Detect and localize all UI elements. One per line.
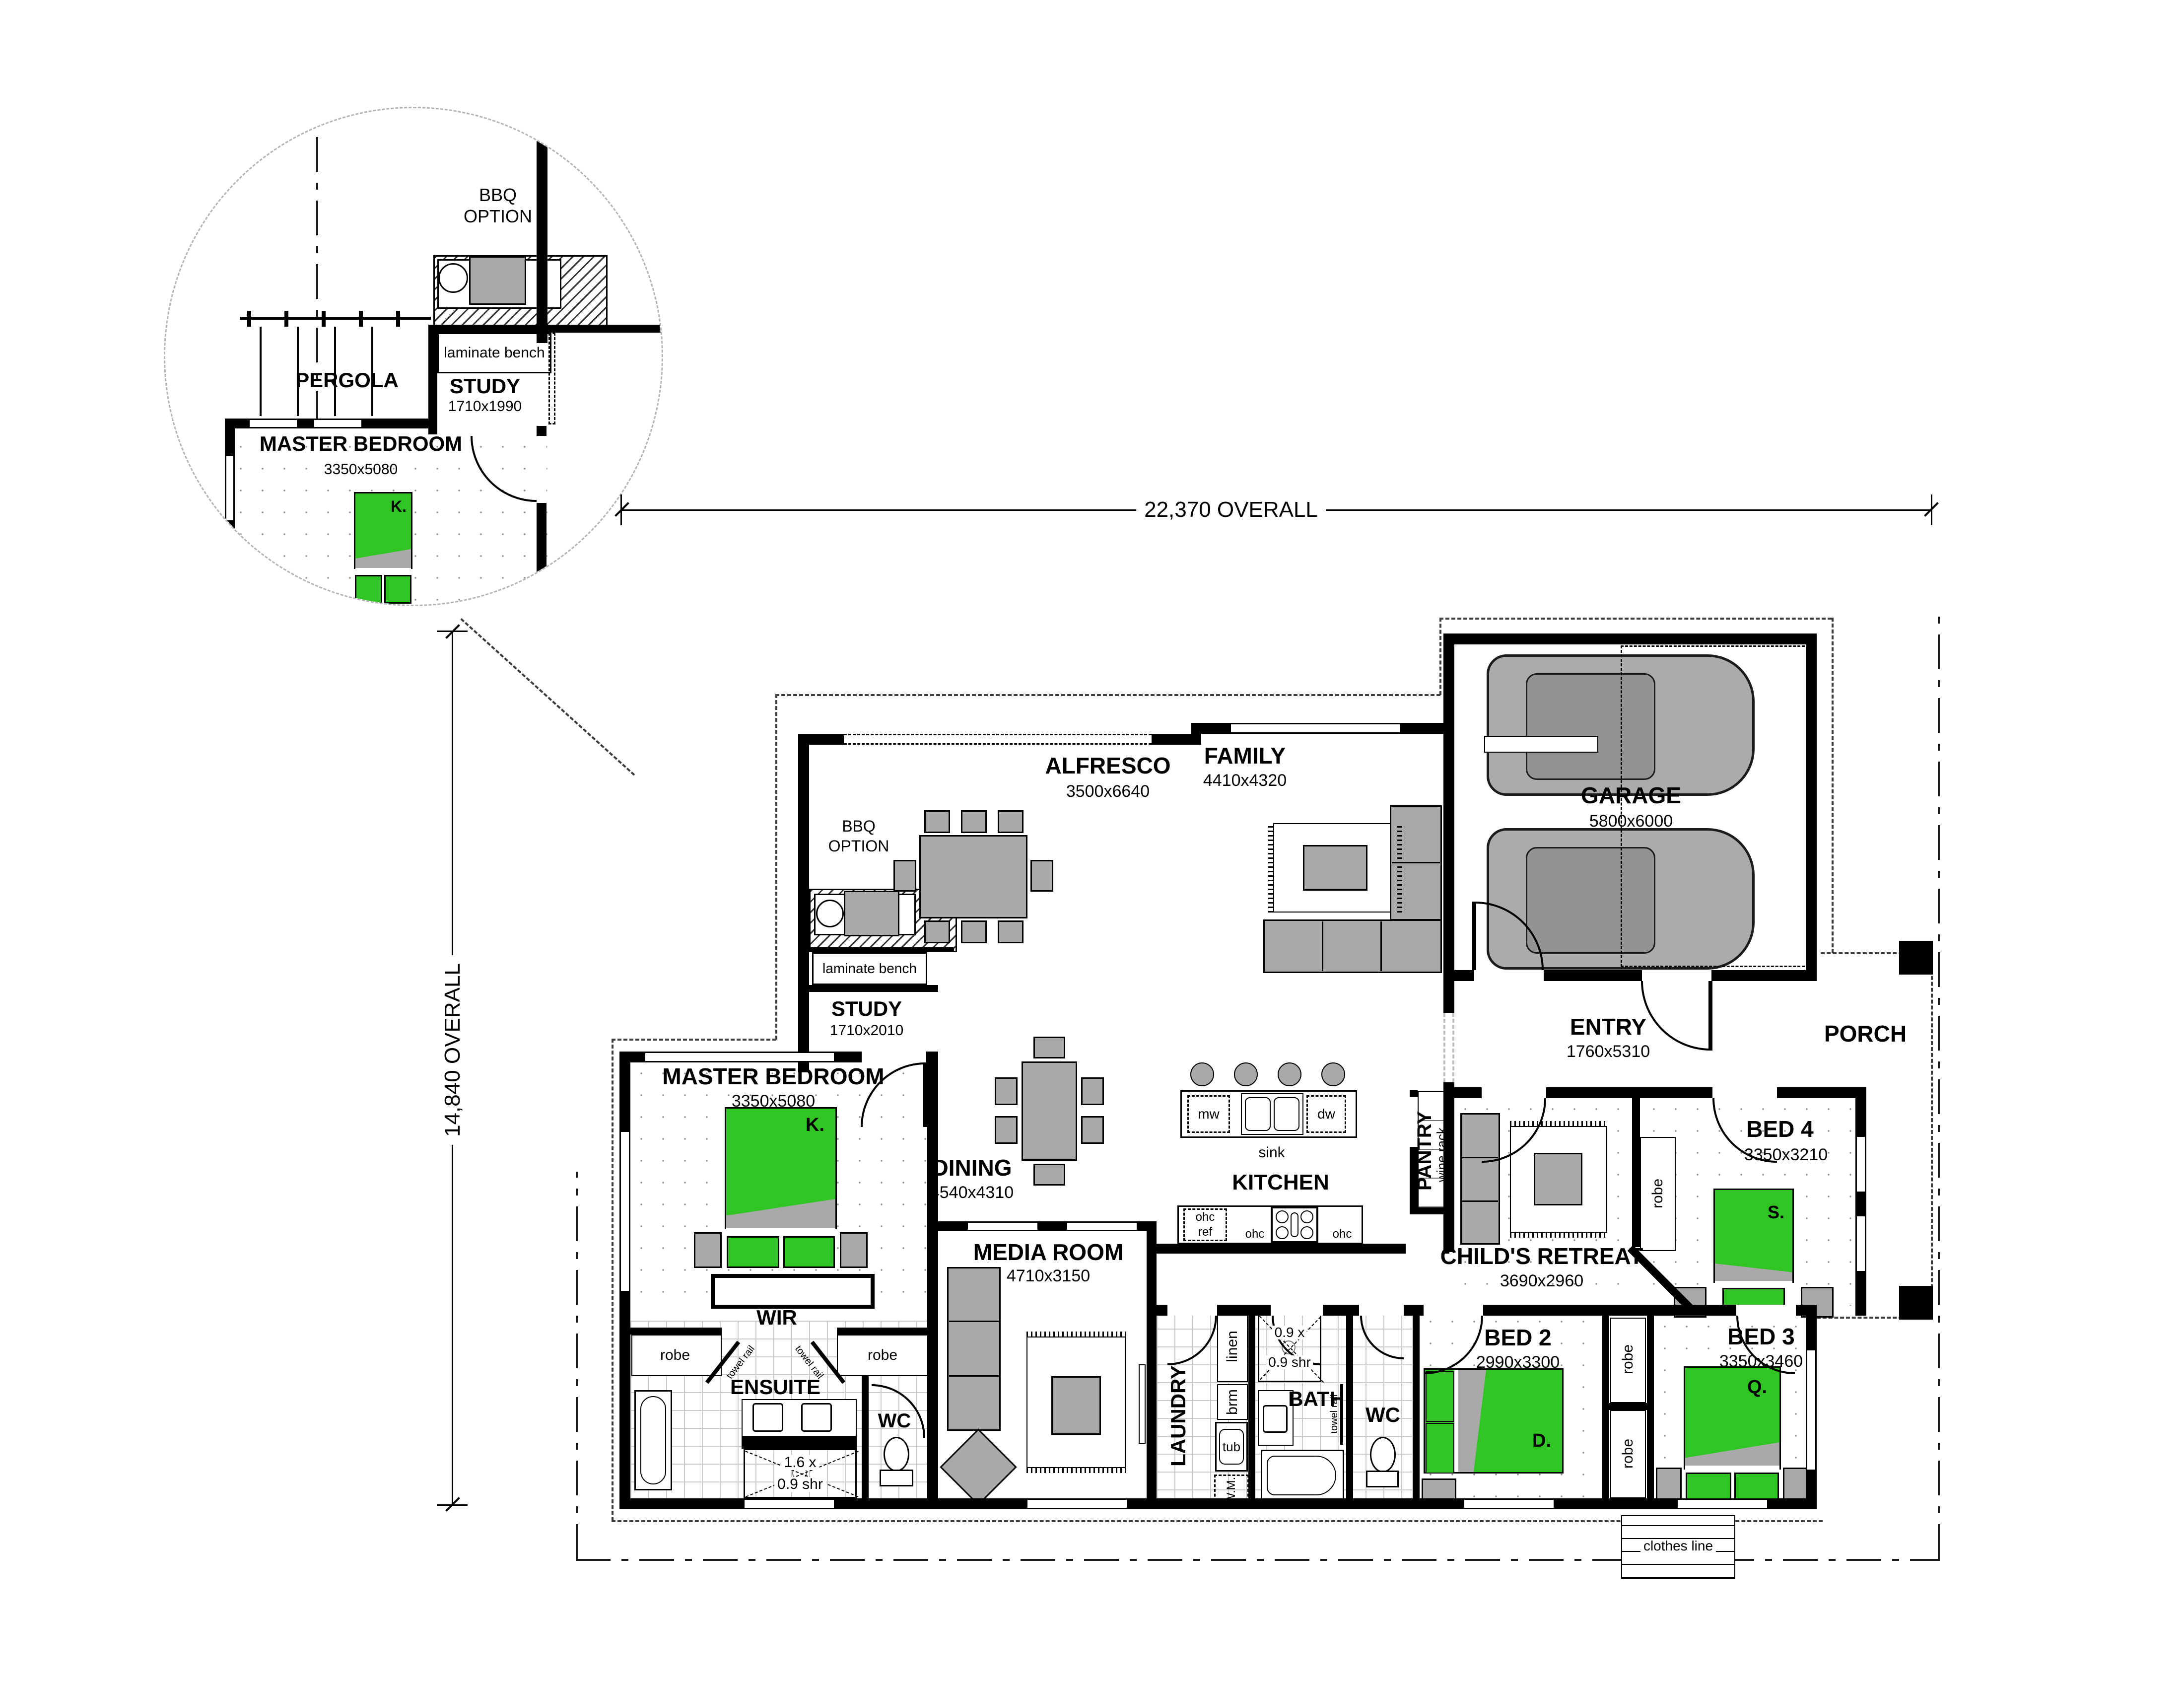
bed2-label: BED 2 (1484, 1326, 1551, 1349)
bed4-bed-type: S. (1768, 1203, 1784, 1221)
family-size: 4410x4320 (1203, 772, 1287, 789)
toilet-cistern (880, 1470, 913, 1486)
wir-robe-wall (630, 1328, 722, 1335)
porch-label: PORCH (1824, 1022, 1907, 1045)
front-door-leaf (1708, 981, 1712, 1051)
dining-table (1022, 1061, 1077, 1161)
left-window (619, 1132, 630, 1291)
bathtub-inner (640, 1396, 666, 1484)
master-dresser (711, 1274, 875, 1309)
washing-machine-label: W.M. (1226, 1477, 1237, 1504)
family-entry-opening-line (1443, 1013, 1445, 1082)
bed4-door-opening (1712, 1087, 1777, 1098)
media-cavity-door (968, 1221, 1037, 1231)
media-right-wall (1147, 1231, 1157, 1509)
family-sofa (1263, 919, 1442, 973)
inset-bed-type-label: K. (391, 498, 407, 514)
bottom-window (1027, 1498, 1127, 1509)
toilet-pan (884, 1437, 909, 1472)
master-bed-pillow (783, 1236, 835, 1268)
inset-master-top-window (314, 419, 361, 428)
master-label: MASTER BEDROOM (662, 1065, 884, 1088)
inset-bbq-grill (469, 256, 526, 305)
bed2-gap (1454, 1370, 1458, 1472)
broom-label: brm (1225, 1389, 1240, 1415)
inset-bed-gap (355, 568, 411, 572)
vanity-basin (1263, 1405, 1288, 1433)
entry-size: 1760x5310 (1567, 1043, 1650, 1060)
sofa-cushion-line (1462, 1200, 1498, 1202)
inset-master-left-window (225, 456, 235, 520)
bottom-window (1678, 1498, 1767, 1509)
clothes-line-label: clothes line (1640, 1539, 1716, 1553)
bottom-window (1464, 1498, 1554, 1509)
alfresco-chair (961, 810, 987, 833)
alfresco-top-screen (844, 734, 1152, 745)
bed2-pillow (1426, 1371, 1454, 1422)
bbq-option-label-line2: OPTION (828, 838, 889, 854)
kitchen-stool (1321, 1062, 1345, 1086)
sofa-cushion-line (1322, 921, 1323, 971)
retreat-label: CHILD'S RETREAT (1440, 1245, 1643, 1267)
inset-bed-pillow (384, 575, 411, 604)
ensuite-wc-wall (862, 1375, 869, 1499)
kitchen-stool (1234, 1062, 1258, 1086)
family-tv-unit (1484, 736, 1598, 753)
family-top-window (1231, 723, 1400, 734)
bed3-bedside-table (1783, 1468, 1809, 1501)
ensuite-shower-size-line2: 0.9 shr (774, 1477, 826, 1492)
boundary-line (1938, 613, 1940, 1559)
inset-leader-line (460, 618, 635, 775)
inset-master-label: MASTER BEDROOM (260, 433, 462, 454)
dining-chair (1081, 1077, 1104, 1105)
alfresco-left-wall (798, 734, 809, 1072)
robe-bed3-wall (1647, 1316, 1654, 1509)
inset-study-label: STUDY (450, 376, 520, 397)
ensuite-wc-label: WC (878, 1411, 911, 1431)
hall-bottom-wall (1157, 1305, 1817, 1316)
bed3-size: 3350x3460 (1719, 1353, 1803, 1370)
media-cavity-door (1067, 1221, 1137, 1231)
bed4-right-window (1855, 1137, 1866, 1192)
porch-roof-line (1931, 952, 1933, 1318)
toilet-pan (1370, 1437, 1396, 1473)
front-door-arc (1641, 981, 1710, 1051)
vanity-basin (752, 1403, 783, 1432)
dining-chair (1081, 1116, 1104, 1144)
master-size: 3350x5080 (732, 1093, 815, 1110)
entry-label: ENTRY (1570, 1015, 1646, 1038)
inset-wall-vertical (537, 107, 547, 343)
bottom-window (745, 1498, 834, 1509)
linen-label: linen (1225, 1331, 1240, 1362)
bed2-bed-type: D. (1532, 1431, 1551, 1450)
bed3-right-window (1806, 1350, 1817, 1470)
garage-label: GARAGE (1581, 784, 1681, 807)
inset-study-right-wall (548, 333, 555, 424)
tub-label: tub (1223, 1440, 1240, 1453)
sofa-cushion-line (949, 1375, 999, 1377)
ohc-label: ohc (1245, 1228, 1265, 1240)
bed3-pillow (1686, 1473, 1731, 1501)
sink-label: sink (1258, 1145, 1285, 1160)
laundry-door-opening (1167, 1305, 1217, 1316)
master-door-leaf (923, 1062, 927, 1127)
pantry-label: PANTRY (1415, 1111, 1434, 1191)
wc-bed2-wall (1413, 1316, 1420, 1509)
pantry-bottom-wall (1410, 1208, 1449, 1214)
bed3-pillow (1734, 1473, 1779, 1501)
pergola-post (284, 311, 288, 327)
inset-master-door-opening (537, 436, 546, 503)
inset-bbq-option-label-line1: BBQ (479, 186, 517, 204)
master-bed-gap (726, 1228, 835, 1233)
robe-label: robe (868, 1348, 897, 1363)
vanity-basin (801, 1403, 832, 1432)
master-bedside-table (840, 1232, 868, 1268)
inset-master-top-window (250, 419, 297, 428)
media-label: MEDIA ROOM (973, 1241, 1123, 1264)
microwave-label: mw (1198, 1107, 1220, 1121)
kitchen-stool (1278, 1062, 1301, 1086)
bath-shower-size-line2: 0.9 shr (1266, 1355, 1313, 1369)
kitchen-stool (1190, 1062, 1214, 1086)
bed3-bed-type: Q. (1747, 1378, 1767, 1397)
eave-line (612, 1039, 614, 1521)
inset-bbq-option-label-line2: OPTION (464, 208, 532, 225)
sofa-cushion-line (1380, 921, 1382, 971)
eave-line (775, 694, 1440, 696)
dim-height-label: 14,840 OVERALL (439, 955, 466, 1145)
ohc-label: ohc (1333, 1228, 1352, 1240)
family-rug-fringe (1397, 823, 1402, 913)
garage-door-opening (1474, 970, 1544, 981)
inset-master-size: 3350x5080 (324, 462, 398, 477)
retreat-size: 3690x2960 (1500, 1272, 1583, 1289)
study-size: 1710x2010 (830, 1023, 903, 1038)
inset-pergola-top-edge (240, 317, 431, 320)
pergola-post (359, 311, 363, 327)
pergola-label: PERGOLA (295, 370, 399, 391)
alfresco-chair (998, 810, 1024, 833)
family-label: FAMILY (1204, 744, 1286, 767)
wc-label: WC (1365, 1405, 1400, 1425)
alfresco-chair (998, 920, 1024, 943)
bathtub-inner (1267, 1456, 1336, 1495)
retreat-bed4-wall (1632, 1098, 1640, 1247)
bed4-label: BED 4 (1746, 1118, 1813, 1140)
sofa-cushion-line (949, 1321, 999, 1322)
cooktop-burner (1276, 1210, 1289, 1223)
sink-bowl (1274, 1097, 1299, 1131)
garage-left-wall (1443, 633, 1454, 981)
bed4-right-window (1855, 1216, 1866, 1271)
retreat-table (1534, 1153, 1582, 1205)
robe-label: robe (660, 1348, 690, 1363)
garage-size: 5800x6000 (1589, 813, 1673, 830)
eave-line (1439, 618, 1832, 620)
garage-right-wall (1806, 633, 1817, 981)
alfresco-chair (893, 860, 916, 892)
cooktop-burner (1300, 1210, 1313, 1223)
pergola-post (396, 311, 400, 327)
bed3-gap (1685, 1466, 1779, 1470)
master-bed-pillow (727, 1236, 779, 1268)
dining-chair (1033, 1037, 1065, 1058)
eave-line (1832, 618, 1834, 953)
robe-label: robe (1650, 1179, 1665, 1208)
alfresco-chair (1030, 860, 1053, 892)
dining-label: DINING (932, 1156, 1012, 1179)
study-label: STUDY (831, 998, 902, 1019)
garage-door-leaf (1472, 902, 1476, 971)
bed2-robe-wall (1602, 1316, 1609, 1509)
bath-door-opening (1271, 1305, 1323, 1316)
sink-bowl (1245, 1097, 1271, 1131)
eave-line (1439, 618, 1441, 695)
fridge-label: ref (1198, 1226, 1212, 1238)
inset-bed-pillow (355, 575, 382, 604)
eave-line (612, 1039, 776, 1041)
study-top-wall (798, 985, 938, 992)
bed3-bedside-table (1656, 1468, 1682, 1501)
boundary-line (576, 1172, 578, 1559)
family-coffee-table (1303, 845, 1367, 891)
dim-width-label: 22,370 OVERALL (1136, 496, 1326, 523)
master-bed-type: K. (806, 1116, 824, 1134)
cooktop-burner (1276, 1226, 1289, 1239)
laundry-strip-wall (1248, 1316, 1255, 1509)
media-armchair (940, 1428, 1017, 1506)
laminate-bench-label: laminate bench (822, 962, 917, 976)
media-size: 4710x3150 (1007, 1267, 1090, 1284)
bed4-size: 3350x3210 (1744, 1146, 1828, 1163)
kitchen-label: KITCHEN (1232, 1172, 1329, 1194)
ohc-label: ohc (1196, 1211, 1215, 1223)
inset-master-left-window (225, 540, 235, 605)
alfresco-chair (961, 920, 987, 943)
alfresco-table (919, 835, 1027, 918)
bbq-grill-main (844, 891, 899, 936)
bed3-label: BED 3 (1727, 1325, 1794, 1348)
alfresco-size: 3500x6640 (1066, 783, 1150, 800)
media-ottoman (1051, 1376, 1101, 1435)
ensuite-shower-size-line1: 1.6 x (781, 1455, 819, 1470)
alfresco-chair (924, 920, 950, 943)
robe-mid-wall (1605, 1403, 1653, 1410)
master-top-window (645, 1052, 834, 1062)
media-sofa (947, 1267, 1001, 1431)
dining-chair (995, 1116, 1018, 1144)
bed4-gap (1715, 1281, 1792, 1285)
wine-rack-label: wine rack (1435, 1127, 1448, 1182)
cooktop-center (1291, 1212, 1298, 1237)
floor-plan: PERGOLA BBQ OPTION laminate bench STUDY … (0, 0, 2184, 1688)
bed2-pillow (1426, 1423, 1454, 1474)
bath-wc-wall (1346, 1316, 1353, 1509)
pergola-rafter (260, 327, 262, 416)
laundry-label: LAUNDRY (1168, 1365, 1189, 1467)
inset-laminate-bench-label: laminate bench (444, 346, 545, 360)
bbq-option-label-line1: BBQ (842, 818, 876, 834)
bed3-door-opening (1736, 1305, 1796, 1316)
master-bedside-table (694, 1232, 722, 1268)
bed2-size: 2990x3300 (1476, 1354, 1560, 1371)
suite-media-wall (927, 1062, 938, 1509)
dishwasher-label: dw (1317, 1107, 1335, 1121)
family-rug-fringe (1268, 823, 1273, 913)
inset-bbq-sink (438, 263, 468, 293)
robe-label: robe (1621, 1439, 1636, 1469)
bbq-sink-main (816, 900, 844, 927)
dining-size: 4540x4310 (930, 1184, 1014, 1201)
cooktop-burner (1300, 1226, 1313, 1239)
retreat-rug-fringe (1510, 1233, 1607, 1238)
inset-study-size: 1710x1990 (448, 399, 522, 414)
ensuite-label: ENSUITE (730, 1377, 820, 1398)
family-entry-opening-line (1452, 1013, 1454, 1082)
wc-door-opening (1359, 1305, 1404, 1316)
alfresco-label: ALFRESCO (1045, 754, 1171, 777)
inset-wall-cap (537, 112, 562, 132)
inset-wall-bench-bottom (428, 325, 663, 333)
hall-passage-opening (1406, 1244, 1443, 1254)
bench-edge-wall (809, 947, 954, 952)
toilet-cistern (1366, 1471, 1399, 1487)
inset-detail-circle: PERGOLA BBQ OPTION laminate bench STUDY … (164, 107, 663, 606)
porch-post (1899, 941, 1933, 975)
media-rug-fringe (1026, 1332, 1126, 1336)
media-rug-fringe (1026, 1468, 1126, 1473)
towel-rail-label: towel rail (1329, 1395, 1339, 1434)
vanity-front (742, 1437, 857, 1449)
pergola-post (247, 311, 251, 327)
pergola-post (322, 311, 326, 327)
porch-post (1899, 1286, 1933, 1320)
robe-label: robe (1621, 1344, 1636, 1374)
dining-chair (1033, 1164, 1065, 1186)
wir-label: WIR (756, 1307, 797, 1328)
garage-top-wall (1443, 633, 1817, 644)
wir-robe-wall (837, 1328, 928, 1335)
sofa-cushion-line (1392, 862, 1440, 863)
bed4-right-wall (1855, 1098, 1866, 1316)
bed2-door-opening (1424, 1305, 1483, 1316)
dining-chair (995, 1077, 1018, 1105)
front-door-opening (1642, 970, 1711, 981)
eave-line (775, 694, 777, 1040)
bath-shower-size-line1: 0.9 x (1273, 1326, 1307, 1339)
media-tv (1139, 1364, 1146, 1444)
retreat-door-opening (1482, 1087, 1546, 1098)
master-door-opening (862, 1052, 926, 1062)
alfresco-chair (924, 810, 950, 833)
